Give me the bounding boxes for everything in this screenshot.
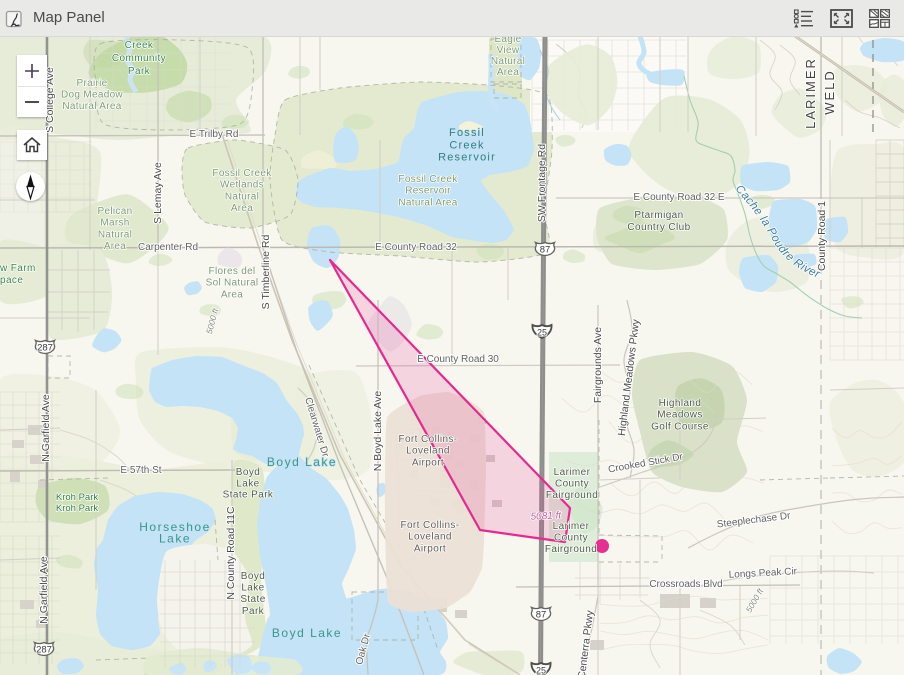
svg-text:County: County	[554, 533, 588, 544]
svg-text:View: View	[497, 45, 520, 56]
svg-text:Natural: Natural	[225, 191, 259, 202]
svg-text:Area: Area	[231, 203, 253, 214]
svg-text:Sol Natural: Sol Natural	[206, 278, 259, 289]
svg-text:Crossroads Blvd: Crossroads Blvd	[649, 579, 722, 590]
svg-text:Lake: Lake	[241, 583, 264, 594]
svg-text:5081 ft: 5081 ft	[530, 510, 562, 523]
svg-text:25: 25	[536, 666, 546, 675]
svg-text:87: 87	[536, 609, 547, 620]
svg-text:Boyd: Boyd	[241, 571, 265, 582]
svg-text:Ptarmigan: Ptarmigan	[634, 210, 683, 221]
svg-text:Airport: Airport	[414, 543, 446, 554]
svg-text:Larimer: Larimer	[554, 467, 591, 478]
svg-text:Boyd: Boyd	[236, 467, 260, 478]
svg-text:Natural Area: Natural Area	[62, 101, 121, 112]
svg-text:Fort Collins-: Fort Collins-	[400, 520, 459, 531]
svg-text:S Lemay Ave: S Lemay Ave	[152, 162, 164, 224]
svg-text:287: 287	[37, 342, 53, 353]
svg-text:Fossil: Fossil	[449, 127, 485, 139]
svg-text:N Garfield Ave: N Garfield Ave	[38, 556, 50, 624]
svg-text:Wetlands: Wetlands	[220, 180, 264, 191]
svg-text:Kroh Park: Kroh Park	[56, 492, 98, 503]
svg-text:Boyd Lake: Boyd Lake	[267, 455, 337, 469]
svg-text:Kroh Park: Kroh Park	[56, 503, 98, 514]
svg-text:Flores del: Flores del	[209, 266, 256, 277]
svg-text:Highland: Highland	[659, 398, 702, 409]
svg-text:Park: Park	[242, 606, 265, 617]
svg-text:w Farm: w Farm	[0, 263, 36, 274]
svg-text:Meadows: Meadows	[657, 410, 703, 421]
svg-text:N Boyd Lake Ave: N Boyd Lake Ave	[372, 391, 384, 472]
svg-text:Creek: Creek	[125, 40, 154, 51]
svg-text:WELD: WELD	[822, 69, 837, 115]
svg-text:S Timberline Rd: S Timberline Rd	[260, 234, 272, 309]
svg-text:287: 287	[36, 644, 52, 655]
svg-text:Fairground: Fairground	[546, 490, 598, 501]
svg-text:Airport: Airport	[412, 457, 444, 468]
svg-text:Area: Area	[104, 241, 126, 252]
svg-text:State: State	[240, 594, 265, 605]
svg-text:Natural: Natural	[98, 229, 132, 240]
svg-text:Pelican: Pelican	[98, 206, 133, 217]
svg-text:E County Road 32: E County Road 32	[375, 242, 457, 253]
svg-text:Reservoir: Reservoir	[405, 186, 451, 197]
svg-text:E Trilby Rd: E Trilby Rd	[190, 129, 239, 140]
svg-text:Fairground: Fairground	[545, 544, 597, 555]
svg-text:Boyd Lake: Boyd Lake	[272, 626, 342, 640]
svg-text:E County Road 32 E: E County Road 32 E	[633, 192, 724, 203]
svg-text:Loveland: Loveland	[406, 446, 450, 457]
svg-text:E 57th St: E 57th St	[120, 465, 161, 476]
svg-text:Area: Area	[221, 289, 243, 300]
svg-text:87: 87	[540, 244, 551, 255]
svg-text:Larimer: Larimer	[553, 521, 590, 532]
svg-text:Park: Park	[128, 66, 151, 77]
svg-text:County Road 1: County Road 1	[816, 201, 828, 271]
svg-text:Loveland: Loveland	[408, 532, 452, 543]
svg-text:SW Frontage Rd: SW Frontage Rd	[536, 144, 548, 222]
svg-text:pace: pace	[0, 275, 23, 286]
svg-text:E County Road 30: E County Road 30	[417, 354, 499, 365]
svg-text:Marsh: Marsh	[100, 218, 129, 229]
svg-text:Lake: Lake	[236, 478, 259, 489]
svg-text:LARIMER: LARIMER	[803, 57, 818, 129]
svg-text:Fossil Creek: Fossil Creek	[398, 174, 458, 185]
svg-text:N Garfield Ave: N Garfield Ave	[40, 394, 52, 462]
svg-text:Country Club: Country Club	[627, 222, 690, 233]
svg-text:Natural: Natural	[491, 56, 525, 67]
svg-text:Reservoir: Reservoir	[438, 152, 496, 164]
svg-text:County: County	[555, 479, 589, 490]
svg-text:Fort Collins-: Fort Collins-	[398, 434, 457, 445]
svg-text:N County Road 11C: N County Road 11C	[225, 506, 237, 600]
svg-text:Community: Community	[112, 53, 166, 64]
svg-text:State Park: State Park	[223, 490, 274, 501]
svg-text:Lake: Lake	[159, 532, 191, 546]
svg-text:Fairgrounds Ave: Fairgrounds Ave	[592, 327, 604, 403]
svg-text:Golf Course: Golf Course	[651, 421, 709, 432]
svg-text:Dog Meadow: Dog Meadow	[61, 90, 123, 101]
svg-text:Area: Area	[497, 67, 519, 78]
svg-text:Creek: Creek	[449, 139, 484, 151]
svg-text:Natural Area: Natural Area	[398, 197, 457, 208]
svg-text:Prairie: Prairie	[77, 78, 108, 89]
svg-text:25: 25	[537, 328, 547, 338]
svg-text:Fossil Creek: Fossil Creek	[212, 168, 272, 179]
svg-text:Carpenter Rd: Carpenter Rd	[138, 242, 198, 253]
